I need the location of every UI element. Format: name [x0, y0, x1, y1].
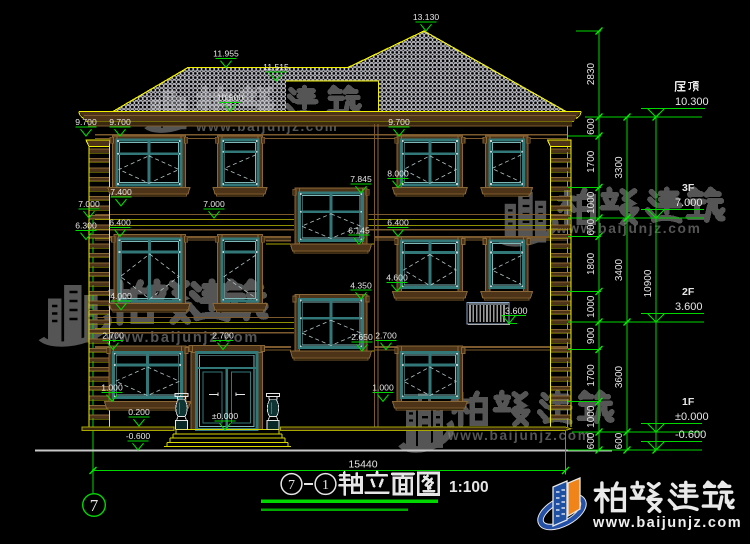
svg-text:www.baijunjz.com: www.baijunjz.com [555, 221, 702, 236]
svg-text:7.845: 7.845 [350, 174, 372, 184]
svg-text:9.700: 9.700 [388, 117, 410, 127]
svg-text:600: 600 [614, 432, 625, 449]
svg-text:3600: 3600 [614, 365, 625, 388]
svg-text:1700: 1700 [586, 150, 597, 173]
svg-text:10.500: 10.500 [217, 93, 244, 103]
svg-text:1.000: 1.000 [101, 383, 123, 393]
svg-text:2.700: 2.700 [212, 331, 234, 341]
svg-text:3.600: 3.600 [675, 301, 703, 313]
svg-text:7.400: 7.400 [110, 187, 132, 197]
svg-text:1000: 1000 [586, 295, 597, 318]
svg-text:10.300: 10.300 [675, 96, 709, 108]
svg-text:13.130: 13.130 [413, 12, 440, 22]
svg-text:4.000: 4.000 [110, 291, 132, 301]
svg-text:10900: 10900 [643, 269, 654, 297]
svg-text:2F: 2F [682, 286, 695, 298]
svg-text:-0.600: -0.600 [126, 431, 151, 441]
svg-text:900: 900 [586, 327, 597, 344]
svg-text:2.700: 2.700 [375, 331, 397, 341]
svg-text:0.200: 0.200 [128, 407, 150, 417]
svg-text:7.000: 7.000 [203, 199, 225, 209]
svg-text:3.600: 3.600 [505, 306, 528, 316]
svg-text:1000: 1000 [586, 405, 597, 428]
svg-text:11.955: 11.955 [213, 49, 239, 59]
svg-text:8.000: 8.000 [387, 169, 409, 179]
svg-text:3400: 3400 [614, 258, 625, 281]
svg-text:-0.600: -0.600 [675, 429, 706, 441]
svg-text:3F: 3F [682, 182, 695, 194]
svg-text:±0.000: ±0.000 [212, 411, 238, 421]
svg-text:7: 7 [288, 478, 295, 493]
svg-text:7: 7 [90, 496, 99, 515]
svg-text:1: 1 [322, 478, 329, 493]
svg-text:600: 600 [586, 432, 597, 449]
svg-text:6.300: 6.300 [75, 221, 97, 231]
svg-text:4.600: 4.600 [386, 273, 408, 283]
svg-text:7.000: 7.000 [78, 199, 100, 209]
svg-text:11.515: 11.515 [263, 62, 289, 72]
svg-text:6.400: 6.400 [109, 218, 131, 228]
svg-text:4.350: 4.350 [350, 280, 372, 290]
svg-text:1:100: 1:100 [449, 479, 489, 496]
svg-text:www.baijunjz.com: www.baijunjz.com [592, 515, 742, 531]
svg-text:7.000: 7.000 [675, 197, 703, 209]
svg-text:1800: 1800 [586, 252, 597, 275]
svg-text:6.145: 6.145 [348, 225, 370, 235]
svg-text:2830: 2830 [586, 62, 597, 85]
svg-text:1000: 1000 [586, 191, 597, 214]
svg-text:600: 600 [586, 118, 597, 135]
svg-text:3300: 3300 [614, 156, 625, 179]
svg-text:1700: 1700 [586, 364, 597, 387]
svg-text:9.700: 9.700 [75, 117, 97, 127]
svg-text:1.000: 1.000 [372, 383, 394, 393]
svg-text:±0.000: ±0.000 [675, 411, 709, 423]
svg-text:2.700: 2.700 [102, 331, 124, 341]
svg-text:2.650: 2.650 [351, 332, 373, 342]
svg-text:9.700: 9.700 [109, 117, 131, 127]
svg-text:6.400: 6.400 [387, 218, 409, 228]
svg-text:600: 600 [586, 218, 597, 235]
svg-text:1F: 1F [682, 396, 695, 408]
svg-text:15440: 15440 [348, 459, 377, 471]
